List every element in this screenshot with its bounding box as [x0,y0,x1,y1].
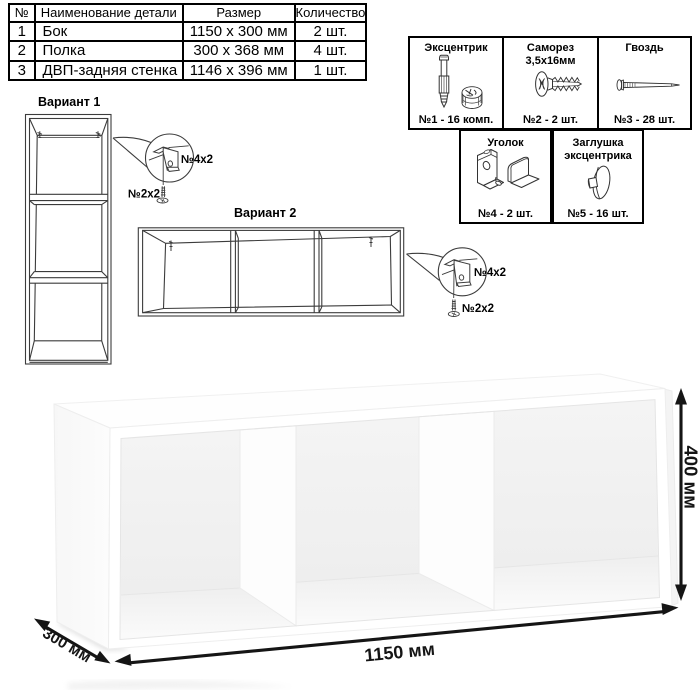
svg-text:№2х2: №2х2 [462,303,494,315]
svg-text:№4х2: №4х2 [181,154,213,166]
svg-text:№4х2: №4х2 [474,267,506,279]
svg-text:400 мм: 400 мм [681,446,700,509]
svg-text:1150 мм: 1150 мм [363,639,435,666]
svg-text:№2х2: №2х2 [128,189,160,201]
